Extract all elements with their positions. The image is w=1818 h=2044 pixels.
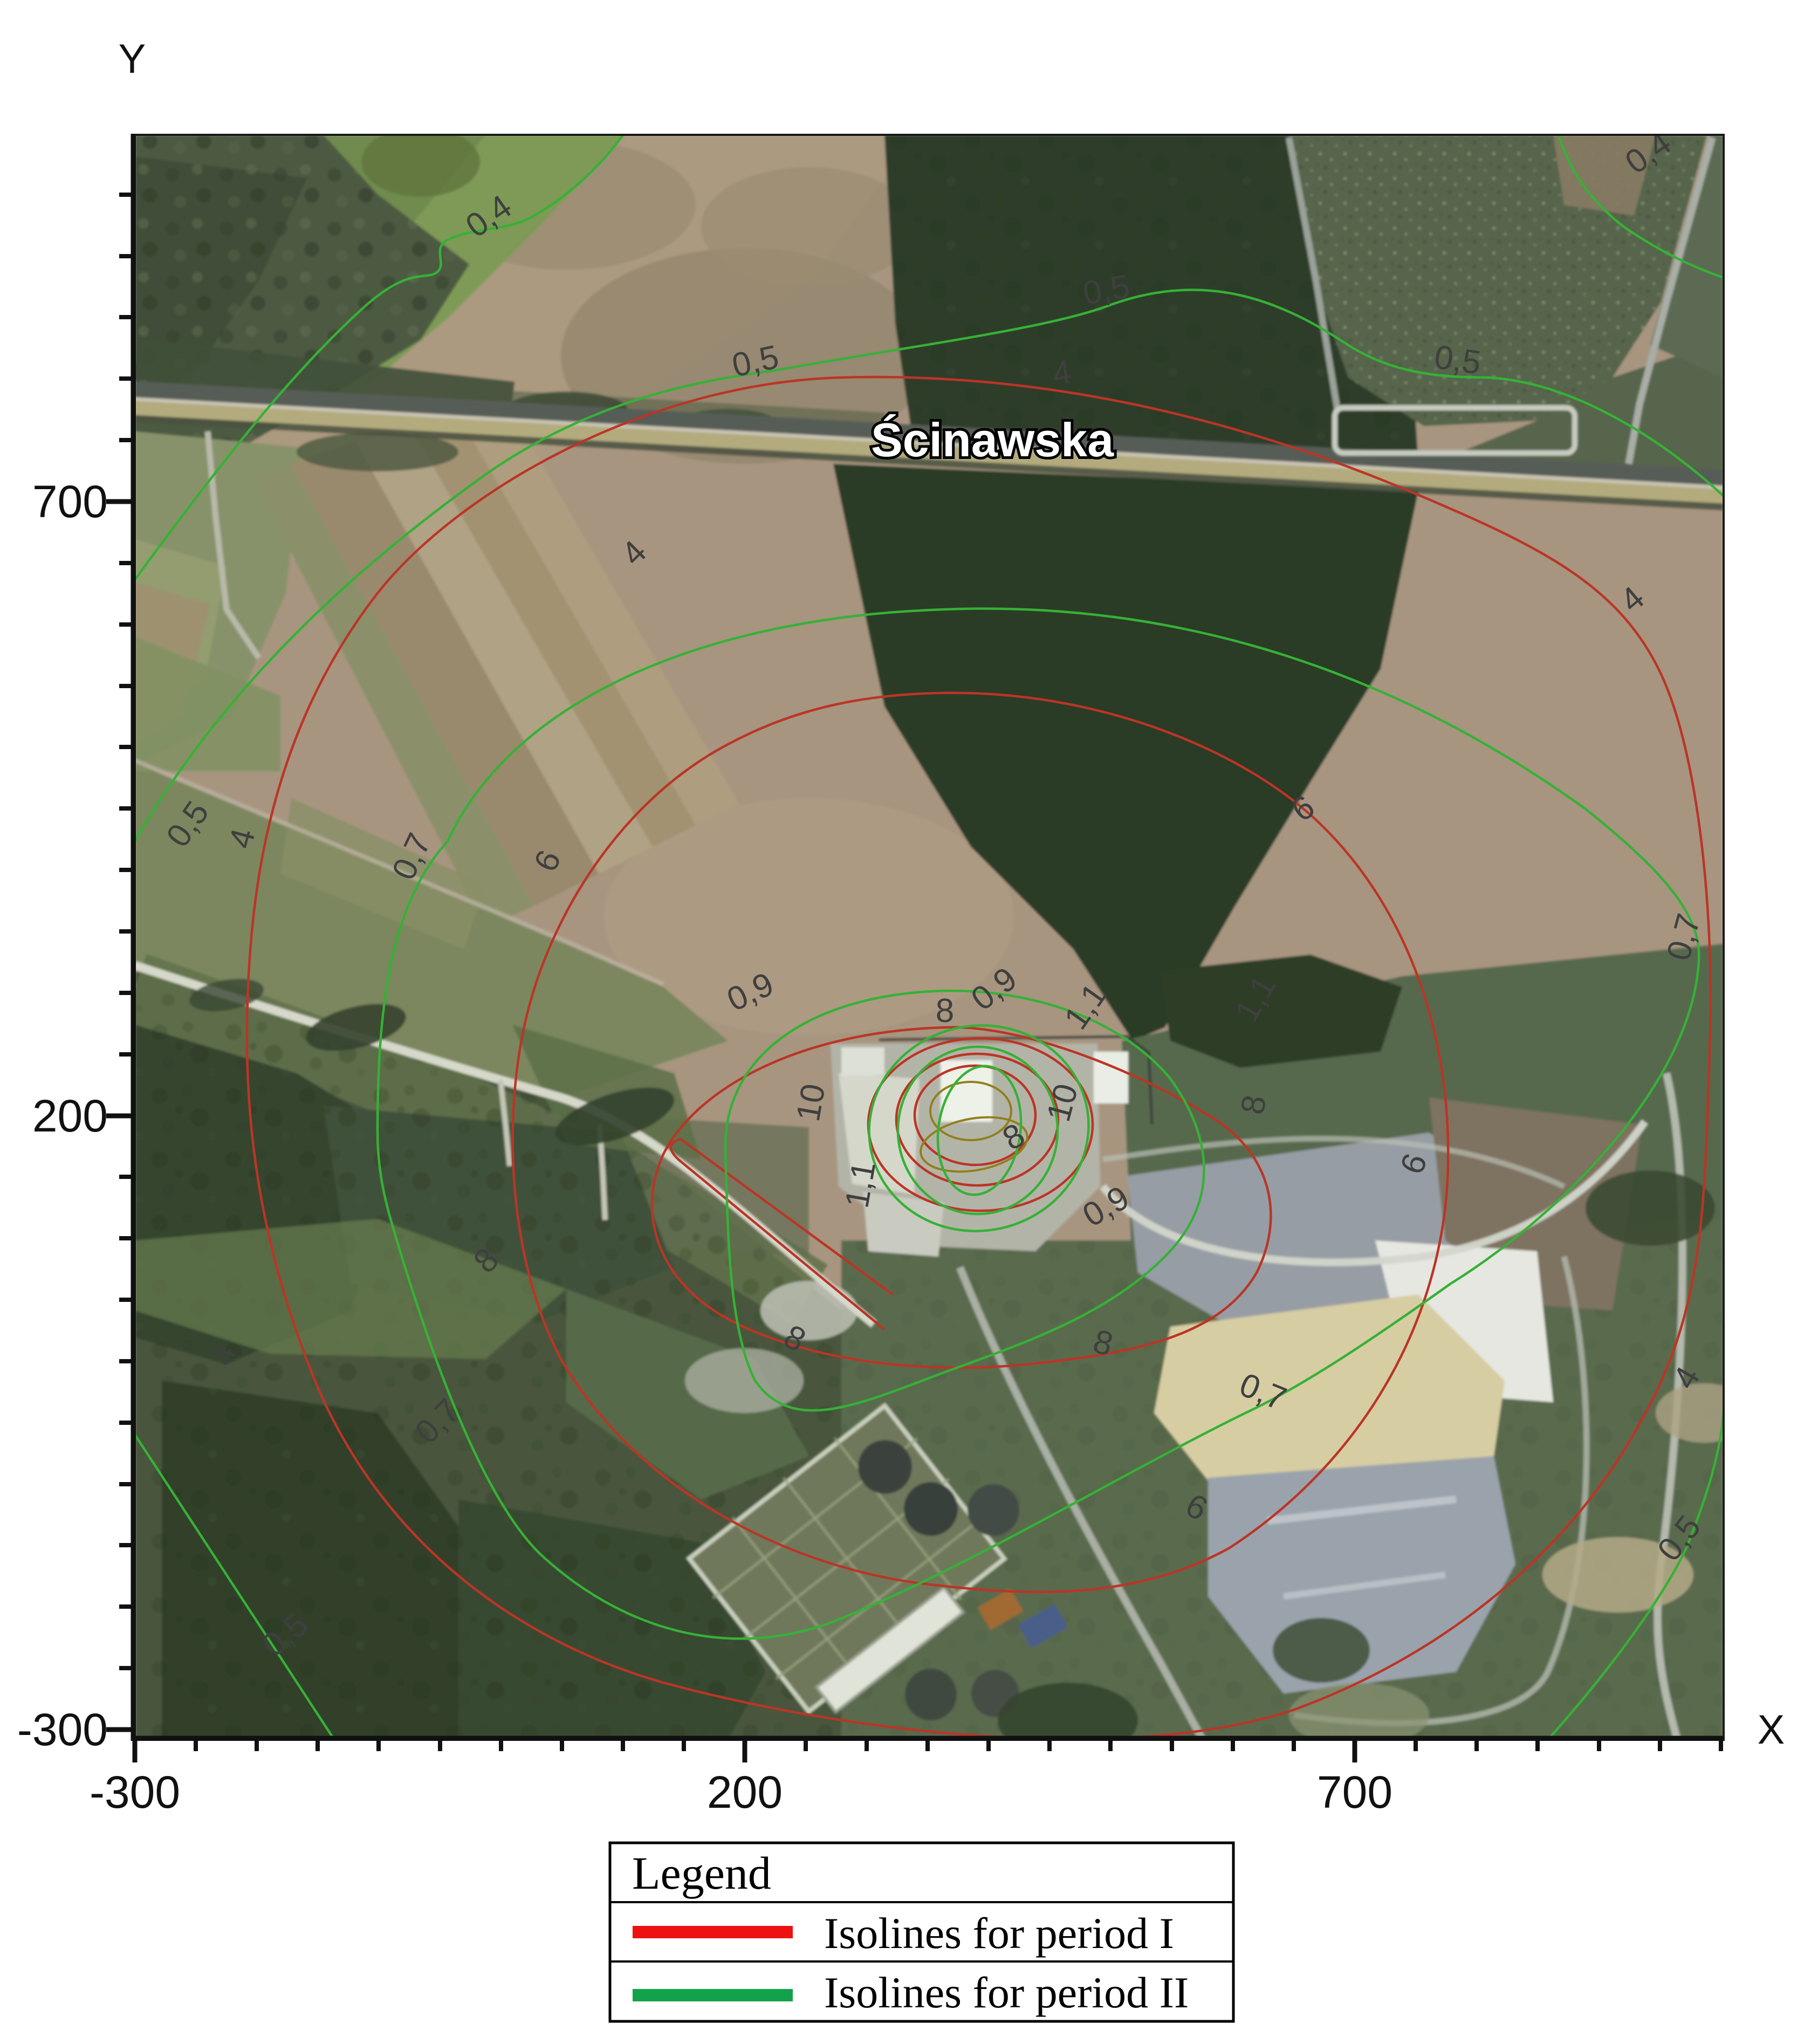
svg-text:0,5: 0,5 [1080,267,1133,312]
svg-text:-300: -300 [17,1704,108,1755]
svg-text:700: 700 [32,476,108,527]
svg-text:0,5: 0,5 [1432,339,1483,382]
svg-text:Y: Y [119,36,146,82]
svg-text:10: 10 [790,1081,833,1124]
svg-text:Ścinawska: Ścinawska [871,413,1114,467]
svg-text:X: X [1758,1707,1785,1753]
svg-text:200: 200 [707,1767,783,1817]
svg-text:-300: -300 [90,1767,180,1817]
svg-text:Isolines for period I: Isolines for period I [824,1909,1174,1958]
svg-text:Isolines for period II: Isolines for period II [824,1968,1189,2017]
svg-text:8: 8 [936,992,954,1030]
svg-text:1,1: 1,1 [838,1158,883,1211]
svg-text:Legend: Legend [632,1847,771,1899]
svg-text:200: 200 [32,1090,108,1141]
svg-text:700: 700 [1317,1767,1392,1817]
